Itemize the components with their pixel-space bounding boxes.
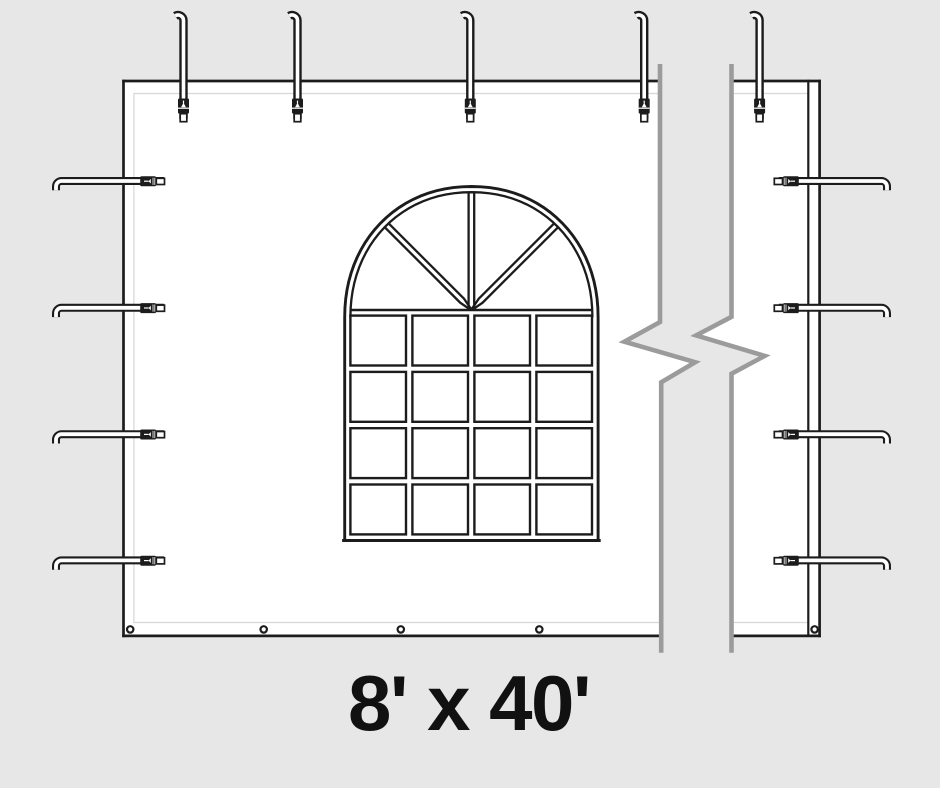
- svg-text:8' x 40': 8' x 40': [348, 659, 590, 747]
